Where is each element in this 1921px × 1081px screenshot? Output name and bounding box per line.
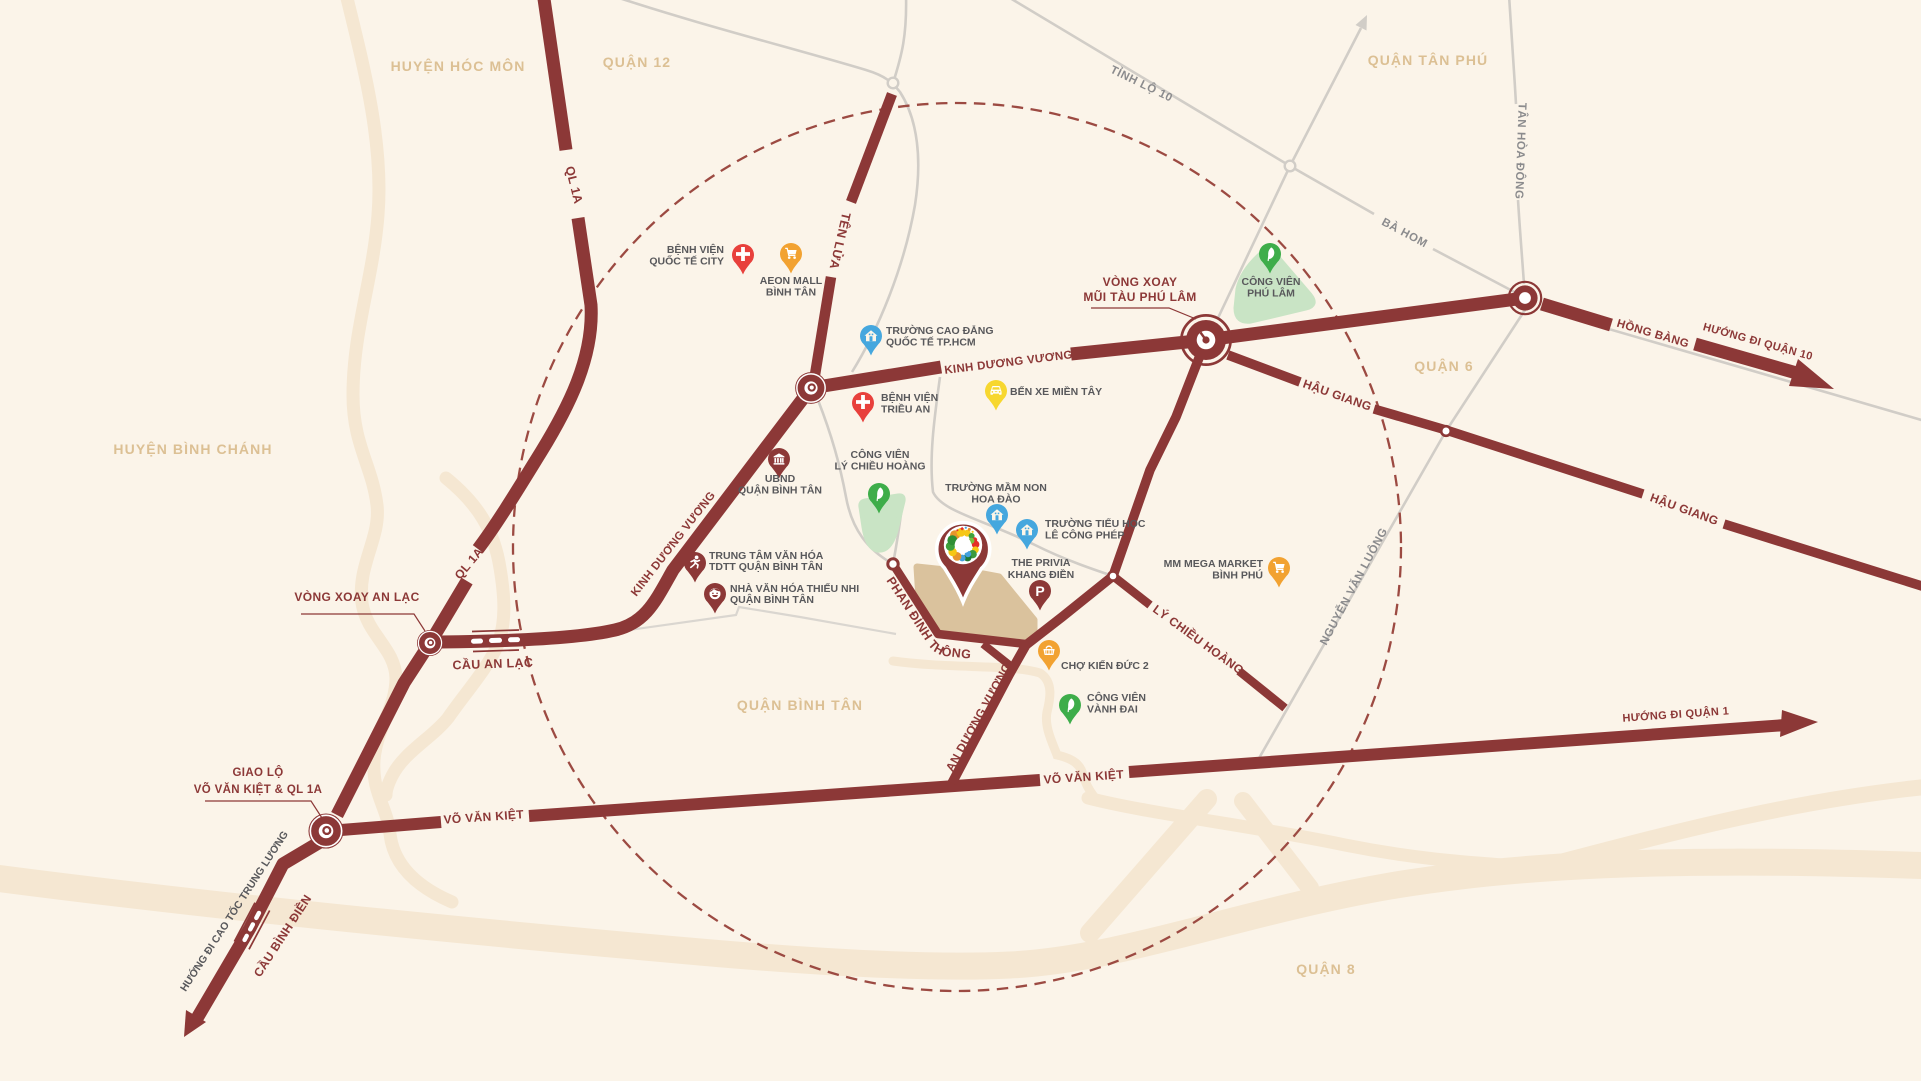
svg-text:TDTT QUẬN BÌNH TÂN: TDTT QUẬN BÌNH TÂN: [709, 560, 823, 573]
svg-text:TRƯỜNG MẦM NON: TRƯỜNG MẦM NON: [945, 481, 1047, 494]
svg-text:HUYỆN BÌNH CHÁNH: HUYỆN BÌNH CHÁNH: [113, 440, 272, 457]
svg-text:BỆNH VIỆN: BỆNH VIỆN: [881, 391, 938, 404]
svg-text:TRƯỜNG CAO ĐẲNG: TRƯỜNG CAO ĐẲNG: [886, 324, 994, 337]
svg-text:CHỢ KIẾN ĐỨC 2: CHỢ KIẾN ĐỨC 2: [1061, 659, 1149, 672]
svg-text:CẦU AN LẠC: CẦU AN LẠC: [452, 655, 533, 673]
svg-text:BÌNH TÂN: BÌNH TÂN: [766, 286, 816, 299]
svg-text:TRIỀU AN: TRIỀU AN: [881, 403, 930, 416]
svg-text:CÔNG VIÊN: CÔNG VIÊN: [1087, 691, 1146, 704]
svg-text:QUẬN TÂN PHÚ: QUẬN TÂN PHÚ: [1368, 51, 1489, 68]
svg-text:PHÚ LÂM: PHÚ LÂM: [1247, 287, 1295, 300]
svg-text:QUỐC TẾ CITY: QUỐC TẾ CITY: [649, 254, 724, 268]
svg-text:GIAO LỘ: GIAO LỘ: [232, 766, 283, 779]
svg-text:BẾN XE MIỀN TÂY: BẾN XE MIỀN TÂY: [1010, 385, 1102, 398]
svg-text:KHANG ĐIỀN: KHANG ĐIỀN: [1008, 568, 1075, 581]
svg-text:HUYỆN HÓC MÔN: HUYỆN HÓC MÔN: [391, 57, 526, 74]
svg-text:TRƯỜNG TIỂU HỌC: TRƯỜNG TIỂU HỌC: [1045, 517, 1146, 530]
svg-text:CÔNG VIÊN: CÔNG VIÊN: [851, 448, 910, 461]
svg-text:UBND: UBND: [765, 473, 796, 485]
svg-text:THE PRIVIA: THE PRIVIA: [1012, 557, 1071, 569]
svg-text:CÔNG VIÊN: CÔNG VIÊN: [1242, 275, 1301, 288]
svg-text:QUẬN BÌNH TÂN: QUẬN BÌNH TÂN: [730, 593, 814, 606]
svg-text:QUẬN BÌNH TÂN: QUẬN BÌNH TÂN: [738, 484, 822, 497]
svg-text:VÕ VĂN KIỆT & QL 1A: VÕ VĂN KIỆT & QL 1A: [194, 783, 322, 796]
svg-text:LÝ CHIỀU HOÀNG: LÝ CHIỀU HOÀNG: [834, 460, 925, 473]
svg-text:VÒNG XOAY AN LẠC: VÒNG XOAY AN LẠC: [294, 589, 419, 604]
svg-text:LÊ CÔNG PHÉP: LÊ CÔNG PHÉP: [1045, 529, 1124, 542]
svg-text:BỆNH VIỆN: BỆNH VIỆN: [667, 243, 724, 256]
svg-text:MŨI TÀU PHÚ LÂM: MŨI TÀU PHÚ LÂM: [1083, 289, 1196, 304]
svg-text:QUỐC TẾ TP.HCM: QUỐC TẾ TP.HCM: [886, 335, 976, 349]
svg-text:BÌNH PHÚ: BÌNH PHÚ: [1212, 569, 1263, 582]
svg-text:QUẬN BÌNH TÂN: QUẬN BÌNH TÂN: [737, 696, 863, 713]
svg-text:QUẬN 8: QUẬN 8: [1296, 960, 1356, 977]
svg-text:HOA ĐÀO: HOA ĐÀO: [971, 493, 1020, 506]
svg-text:QUẬN 6: QUẬN 6: [1414, 357, 1474, 374]
svg-text:P: P: [1035, 583, 1044, 599]
svg-text:QUẬN 12: QUẬN 12: [603, 53, 671, 70]
svg-text:VÀNH ĐAI: VÀNH ĐAI: [1087, 703, 1138, 716]
svg-text:AEON MALL: AEON MALL: [760, 275, 823, 287]
svg-text:MM MEGA MARKET: MM MEGA MARKET: [1164, 558, 1264, 570]
svg-text:VÒNG XOAY: VÒNG XOAY: [1103, 274, 1178, 289]
